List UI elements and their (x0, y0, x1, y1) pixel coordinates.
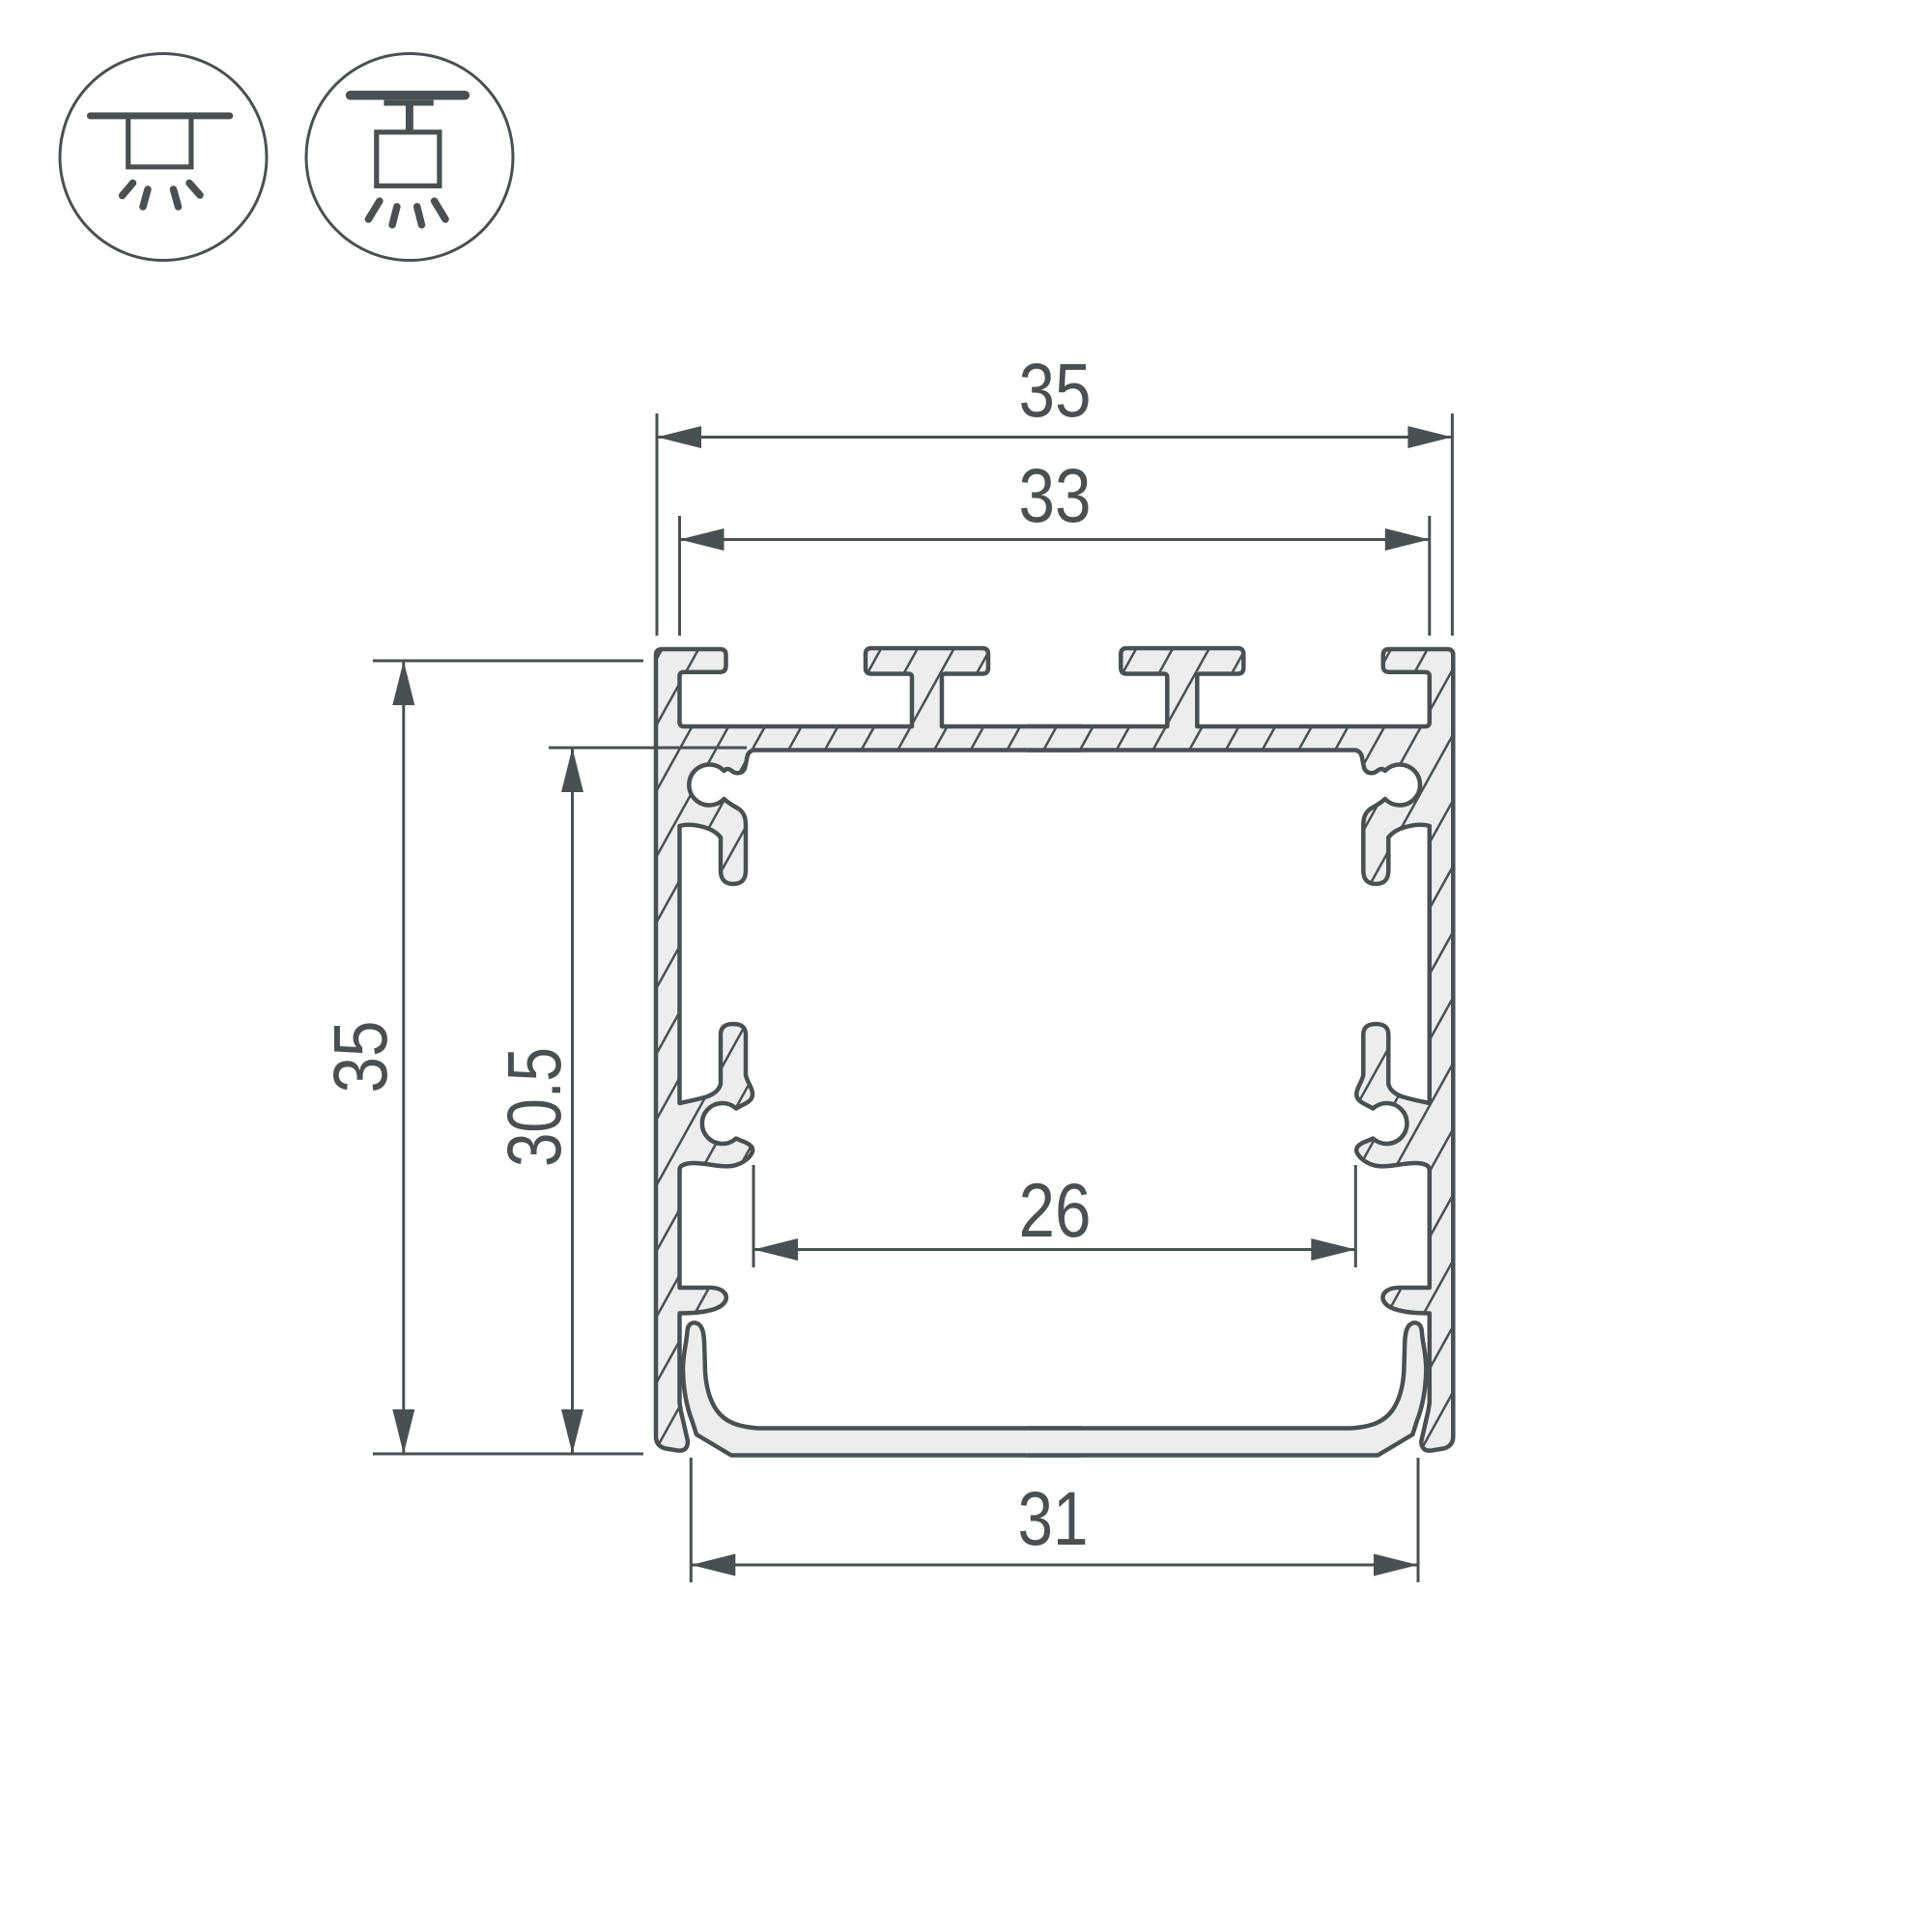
svg-text:30.5: 30.5 (491, 1047, 577, 1167)
svg-text:26: 26 (1019, 1167, 1092, 1253)
svg-text:35: 35 (317, 1021, 403, 1094)
svg-text:31: 31 (1018, 1475, 1089, 1561)
svg-text:33: 33 (1019, 452, 1092, 538)
svg-text:35: 35 (1019, 347, 1092, 433)
